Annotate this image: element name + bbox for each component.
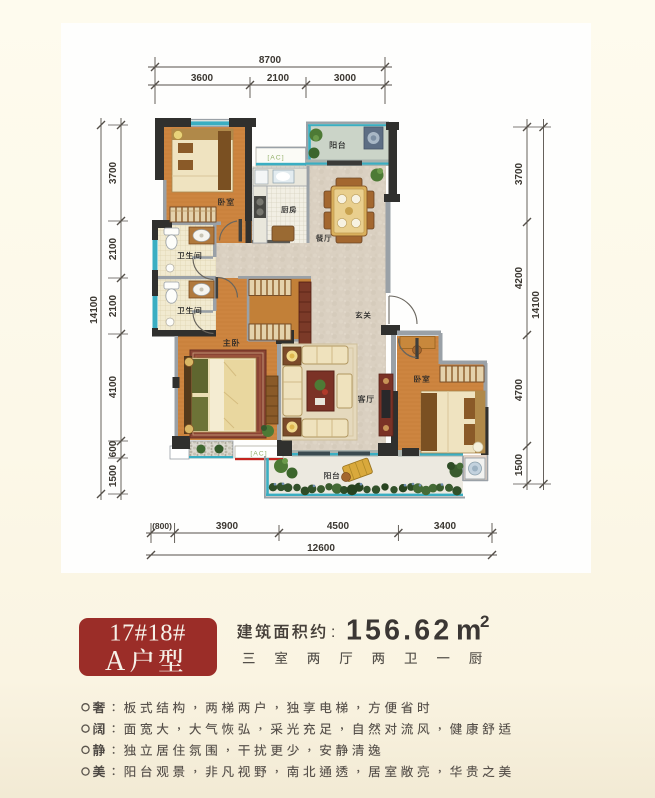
svg-text:3600: 3600 bbox=[191, 73, 214, 84]
svg-text:m: m bbox=[456, 615, 481, 647]
svg-text:[AC]: [AC] bbox=[267, 155, 284, 162]
svg-text:3700: 3700 bbox=[514, 162, 525, 185]
svg-text:14100: 14100 bbox=[89, 296, 100, 324]
svg-text:12600: 12600 bbox=[307, 543, 335, 554]
svg-text:4100: 4100 bbox=[108, 375, 119, 398]
svg-text:3000: 3000 bbox=[334, 73, 357, 84]
svg-text:1500: 1500 bbox=[514, 453, 525, 476]
svg-text:3400: 3400 bbox=[434, 521, 457, 532]
svg-text:3700: 3700 bbox=[108, 161, 119, 184]
svg-text:1500: 1500 bbox=[108, 464, 119, 487]
svg-text:A: A bbox=[105, 646, 126, 677]
svg-text::: : bbox=[331, 624, 335, 641]
svg-text:2100: 2100 bbox=[267, 73, 290, 84]
svg-text:14100: 14100 bbox=[531, 291, 542, 319]
svg-text:600: 600 bbox=[108, 440, 119, 457]
svg-text:3900: 3900 bbox=[216, 521, 239, 532]
svg-text:4500: 4500 bbox=[327, 521, 350, 532]
svg-text:17#18#: 17#18# bbox=[109, 620, 186, 647]
svg-text:2100: 2100 bbox=[108, 294, 119, 317]
svg-text:4200: 4200 bbox=[514, 266, 525, 289]
svg-text:2: 2 bbox=[480, 612, 489, 631]
svg-text:2100: 2100 bbox=[108, 237, 119, 260]
svg-text:8700: 8700 bbox=[259, 55, 282, 66]
svg-text:(800): (800) bbox=[152, 521, 172, 531]
svg-text:156.62: 156.62 bbox=[346, 615, 452, 647]
svg-text:4700: 4700 bbox=[514, 378, 525, 401]
